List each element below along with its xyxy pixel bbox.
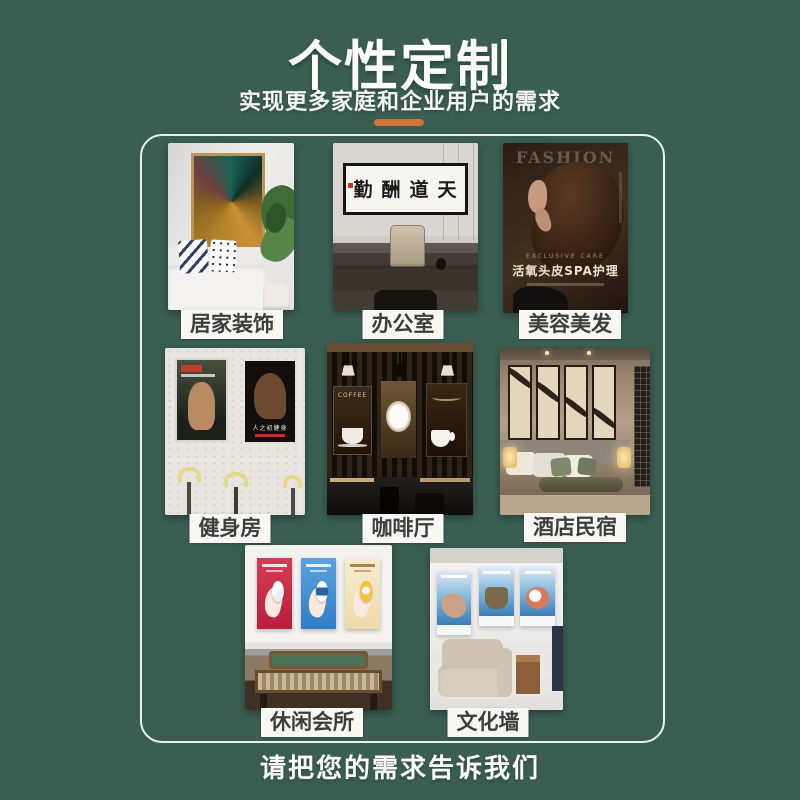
scene-label-gym: 健身房	[190, 514, 271, 543]
abstract-artwork-frame	[191, 153, 265, 251]
scene-label-home-decor: 居家装饰	[181, 310, 283, 339]
vertical-text-bar	[619, 172, 622, 223]
zigzag-pillow	[178, 239, 209, 274]
photo-office: 勤酬道天	[333, 143, 478, 310]
promo-poster: 个性定制 实现更多家庭和企业用户的需求 勤酬道天 FASHION EX	[0, 0, 800, 800]
wood-header	[327, 343, 473, 352]
guest-chair	[374, 290, 438, 310]
desk-cup	[436, 258, 446, 270]
photo-culture-wall	[430, 548, 563, 710]
billiard-table	[269, 651, 369, 669]
spin-bike-handlebar	[283, 475, 303, 488]
poster-footer-strip	[479, 616, 514, 625]
office-desk	[333, 268, 478, 290]
heart-graphic	[526, 587, 550, 609]
scene-label-leisure-club: 休闲会所	[261, 708, 363, 737]
spin-bike-handlebar	[178, 467, 202, 482]
photo-home-decor	[168, 143, 294, 310]
billiards-poster-blue	[301, 558, 336, 629]
spin-bike-post	[234, 487, 238, 515]
poster-text-bar	[310, 570, 328, 572]
chair-silhouette	[415, 493, 444, 515]
bedside-lamp	[617, 447, 631, 469]
wooden-bench	[255, 670, 381, 693]
orange-divider	[374, 119, 424, 126]
billiard-ball	[360, 581, 372, 602]
spin-bike-post	[187, 482, 191, 515]
table-edge	[330, 478, 374, 482]
poster-text-bar	[266, 570, 284, 572]
coffee-poster-text: COFFEE	[334, 392, 371, 399]
script-flourish	[432, 394, 462, 402]
branch-artwork-frames	[508, 365, 616, 440]
scene-label-office: 办公室	[363, 310, 444, 339]
poster-text-bar	[354, 570, 372, 572]
bodybuilder-poster	[175, 358, 228, 442]
red-title-bar	[181, 365, 203, 372]
pendant-lamp	[396, 364, 405, 378]
ceiling-strip	[430, 548, 563, 563]
billiards-poster-red	[257, 558, 292, 629]
culture-poster-ding	[479, 567, 514, 625]
photo-beauty-salon: FASHION EXCLUSIVE CARE 活氧头皮SPA护理	[503, 143, 628, 313]
ding-graphic	[485, 587, 509, 609]
photo-leisure-club	[245, 545, 392, 710]
poster-title-bar	[483, 571, 509, 574]
culture-poster-teamwork	[437, 571, 472, 636]
page-subtitle: 实现更多家庭和企业用户的需求	[239, 84, 561, 116]
light-cord	[447, 352, 449, 367]
poster-footer-strip	[437, 625, 472, 635]
coffee-cup	[431, 430, 450, 447]
bed	[500, 495, 650, 515]
athlete-poster: 人之初健身	[245, 361, 295, 441]
poster-subtitle: 活氧头皮SPA护理	[503, 262, 628, 279]
poster-text-bar	[262, 564, 287, 567]
dark-cabinet	[552, 626, 563, 691]
culture-poster-heart	[520, 567, 555, 625]
sofa-armrest	[497, 648, 513, 697]
photo-hotel-bnb	[500, 348, 650, 515]
coffee-poster-right	[426, 383, 467, 457]
chair-silhouette	[380, 487, 399, 515]
footer-text: 请把您的需求告诉我们	[260, 748, 540, 785]
green-pillow	[577, 457, 597, 476]
calligraphy-text: 勤酬道天	[353, 175, 465, 202]
cup-handle	[449, 432, 455, 441]
latte-poster-middle	[381, 381, 416, 458]
lattice-screen	[634, 366, 651, 486]
pendant-light	[441, 365, 454, 375]
poster-title-bar	[525, 571, 551, 574]
artwork-panel	[564, 365, 588, 440]
photo-gym: 人之初健身	[165, 348, 305, 515]
artwork-panel	[536, 365, 560, 440]
poster-tagline: EXCLUSIVE CARE	[503, 253, 628, 260]
poster-caption: EXCLUSIVE CARE 活氧头皮SPA护理	[503, 253, 628, 286]
side-table	[263, 283, 291, 310]
coffee-cup	[342, 428, 363, 444]
bodybuilder-figure	[188, 382, 216, 430]
billiards-poster-cream	[345, 558, 380, 629]
photo-coffee-shop: COFFEE	[327, 343, 473, 515]
poster-text-bar	[306, 564, 331, 567]
ceiling	[500, 348, 650, 360]
calligraphy-frame: 勤酬道天	[343, 163, 468, 215]
green-pillow	[550, 457, 571, 477]
scene-label-hotel-bnb: 酒店民宿	[524, 513, 626, 542]
light-cord	[347, 352, 349, 367]
fine-print-bar	[527, 283, 605, 286]
poster-footer-strip	[520, 616, 555, 625]
spin-bike-handlebar	[224, 472, 248, 487]
scene-label-coffee-shop: 咖啡厅	[363, 514, 444, 543]
artwork-panel	[592, 365, 616, 440]
side-table	[516, 655, 540, 694]
white-text-bar	[181, 374, 215, 377]
table-leg	[370, 694, 377, 711]
poster-text: 人之初健身	[245, 423, 295, 432]
latte-art-cup	[386, 401, 411, 432]
handshake-graphic	[440, 591, 468, 620]
bedside-lamp	[503, 447, 517, 469]
red-seal-mark	[348, 183, 353, 188]
spin-bike-post	[291, 488, 295, 515]
scene-label-beauty-salon: 美容美发	[519, 310, 621, 339]
office-chair	[390, 225, 425, 267]
coffee-poster-left: COFFEE	[333, 386, 372, 455]
poster-title-bar	[441, 575, 467, 578]
scene-label-culture-wall: 文化墙	[448, 708, 529, 737]
pendant-light	[342, 365, 355, 375]
seated-athlete-figure	[254, 373, 286, 419]
saucer	[338, 444, 366, 447]
red-underline	[255, 434, 285, 437]
bolster-pillow	[539, 477, 623, 492]
artwork-panel	[508, 365, 532, 440]
booth-seating	[327, 477, 473, 515]
model-shoulder	[513, 286, 568, 313]
table-edge	[420, 478, 470, 482]
dotted-pillow	[209, 239, 237, 272]
poster-text-bar	[350, 564, 375, 567]
